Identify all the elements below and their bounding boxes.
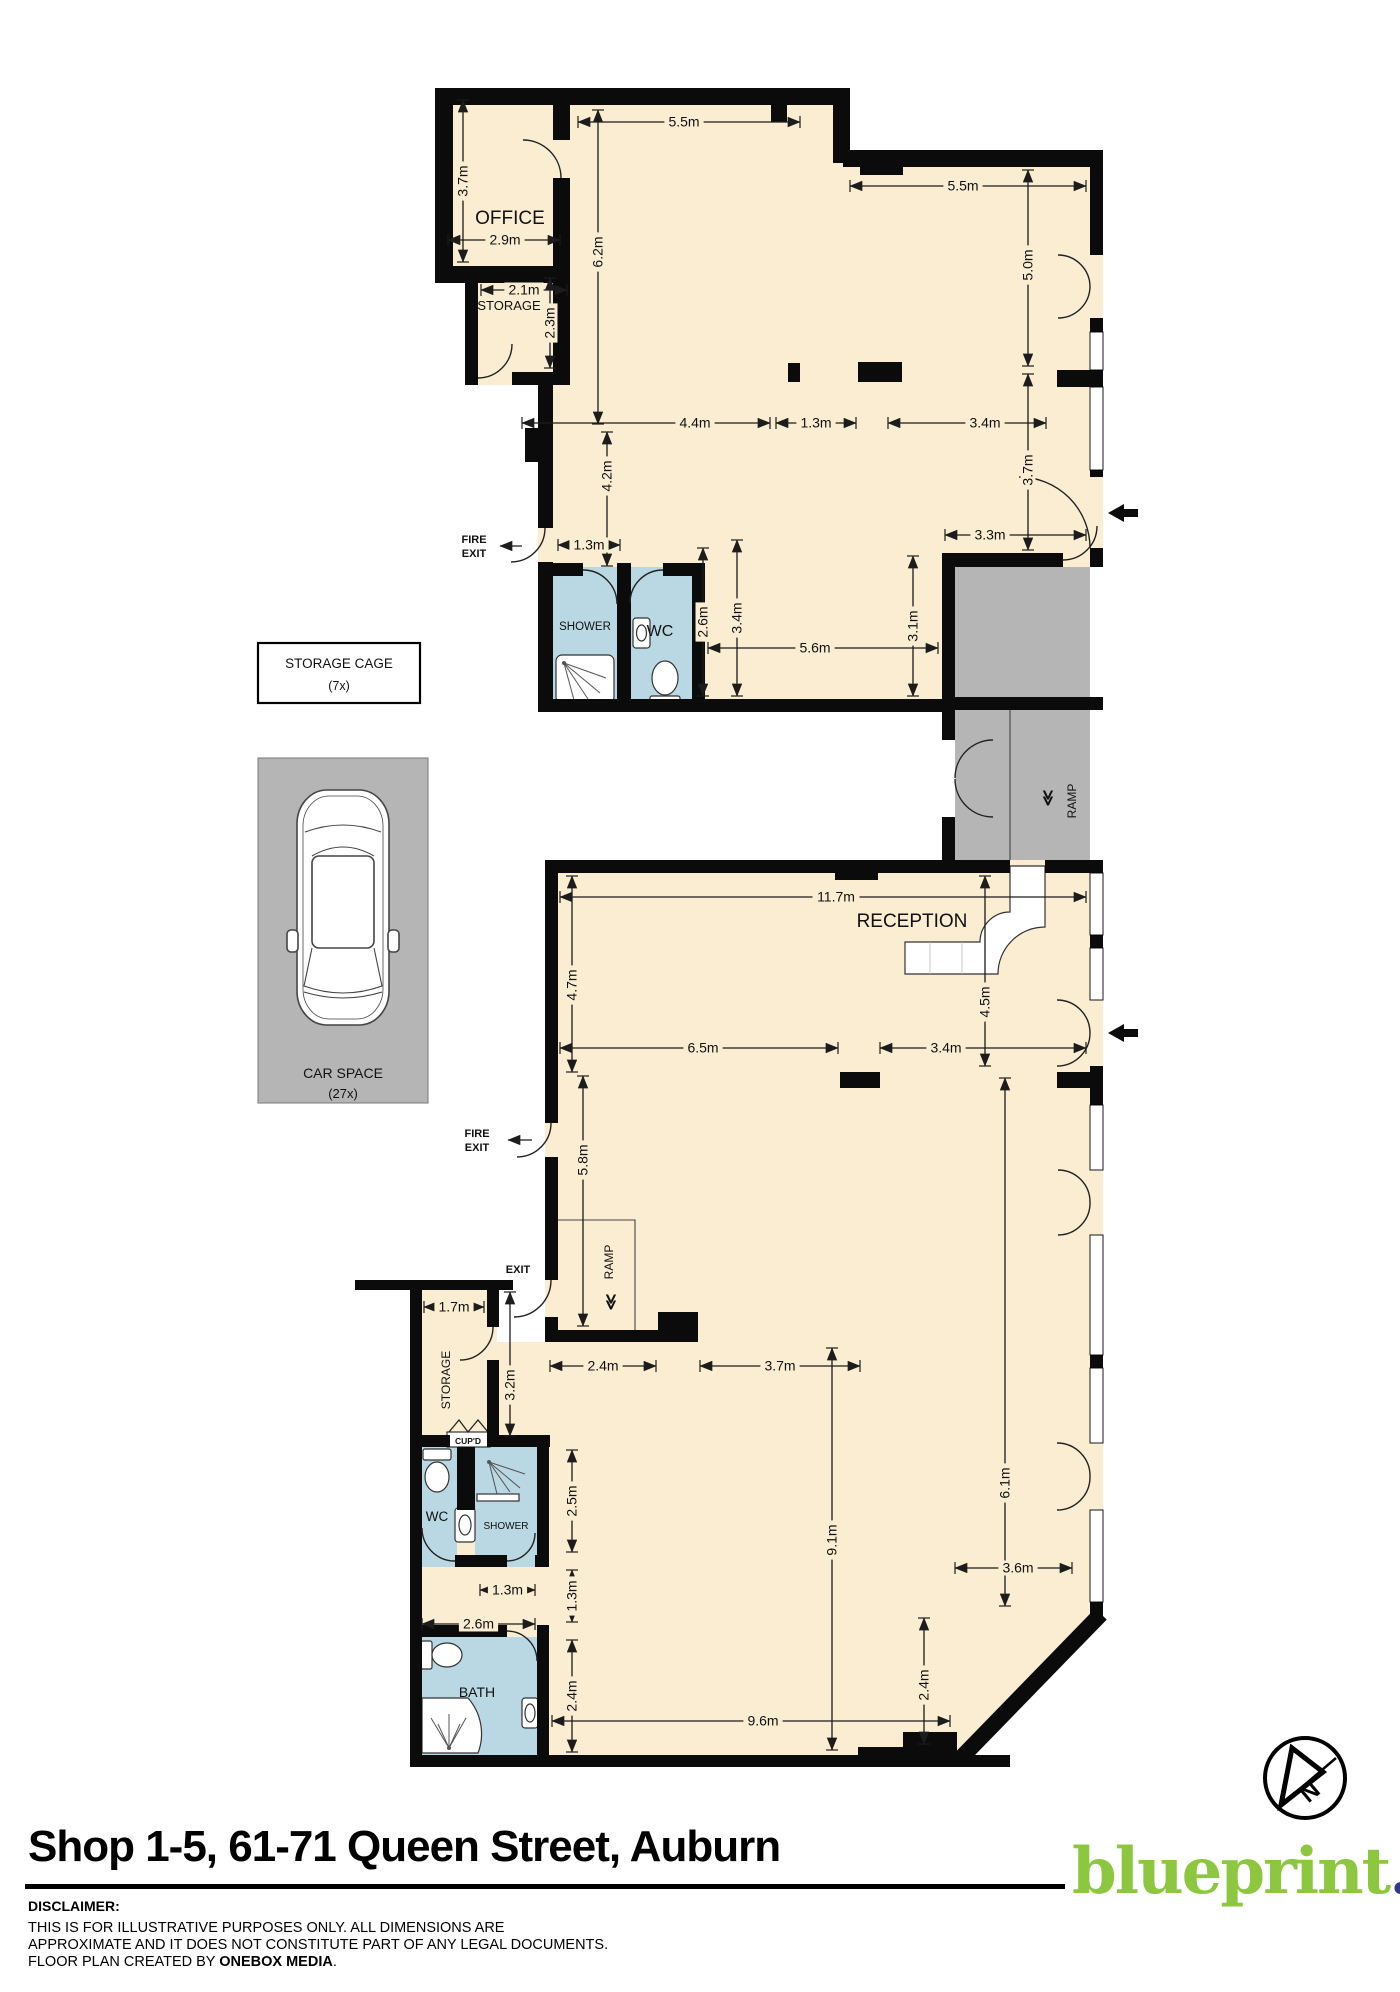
wc-bottom-label: WC bbox=[426, 1509, 449, 1524]
logo-text: blueprint bbox=[1072, 1834, 1389, 1909]
dimension: 1.3m bbox=[480, 1582, 535, 1598]
title-rule bbox=[25, 1884, 1065, 1889]
svg-text:1.3m: 1.3m bbox=[800, 415, 831, 431]
svg-text:2.4m: 2.4m bbox=[916, 1669, 932, 1700]
storage-cage-line1: STORAGE CAGE bbox=[285, 656, 393, 671]
office-label: OFFICE bbox=[475, 208, 545, 229]
svg-text:3.7m: 3.7m bbox=[455, 165, 471, 196]
disclaimer-line1: THIS IS FOR ILLUSTRATIVE PURPOSES ONLY. … bbox=[28, 1920, 608, 1937]
entry-arrows bbox=[1108, 504, 1138, 1042]
blueprint-logo: blueprint. bbox=[1072, 1834, 1400, 1909]
svg-text:2.4m: 2.4m bbox=[564, 1680, 580, 1711]
fire-exit-top-line1: FIRE bbox=[461, 534, 486, 546]
svg-text:3.7m: 3.7m bbox=[1020, 454, 1036, 485]
storage-cage-box bbox=[258, 643, 420, 703]
north-compass-icon: N bbox=[1265, 1738, 1345, 1818]
svg-text:4.4m: 4.4m bbox=[679, 415, 710, 431]
svg-text:1.3m: 1.3m bbox=[492, 1582, 523, 1598]
svg-text:4.2m: 4.2m bbox=[599, 460, 615, 491]
svg-text:2.3m: 2.3m bbox=[542, 307, 558, 338]
svg-text:9.6m: 9.6m bbox=[747, 1713, 778, 1729]
ramp-gray-chevrons-icon: ≪ bbox=[1040, 790, 1057, 807]
shower-bottom-label: SHOWER bbox=[484, 1521, 529, 1532]
ramp-gray-label: RAMP bbox=[1065, 784, 1079, 819]
svg-text:3.4m: 3.4m bbox=[930, 1040, 961, 1056]
svg-text:5.5m: 5.5m bbox=[947, 178, 978, 194]
disclaimer-creator: ONEBOX MEDIA bbox=[219, 1954, 333, 1970]
svg-text:3.2m: 3.2m bbox=[502, 1369, 518, 1400]
svg-text:5.8m: 5.8m bbox=[575, 1144, 591, 1175]
shower-top-label: SHOWER bbox=[559, 621, 611, 633]
shower-bottom-floor bbox=[475, 1447, 537, 1567]
floorplan-svg: 3.7m5.5m5.5m2.9m2.1m2.3m6.2m5.0m4.4m1.3m… bbox=[0, 0, 1400, 1992]
svg-text:2.6m: 2.6m bbox=[695, 606, 711, 637]
svg-text:4.7m: 4.7m bbox=[564, 969, 580, 1000]
ramp-inner-label: RAMP bbox=[602, 1245, 616, 1280]
fire-exit-mid-line1: FIRE bbox=[464, 1128, 489, 1140]
svg-text:6.1m: 6.1m bbox=[997, 1467, 1013, 1498]
svg-text:2.6m: 2.6m bbox=[463, 1616, 494, 1632]
north-letter: N bbox=[1295, 1776, 1326, 1808]
svg-text:3.6m: 3.6m bbox=[1002, 1560, 1033, 1576]
disclaimer-block: DISCLAIMER: THIS IS FOR ILLUSTRATIVE PUR… bbox=[28, 1898, 608, 1971]
svg-text:1.3m: 1.3m bbox=[564, 1580, 580, 1611]
exit-label: EXIT bbox=[506, 1264, 531, 1276]
svg-text:3.4m: 3.4m bbox=[729, 602, 745, 633]
svg-text:11.7m: 11.7m bbox=[817, 889, 855, 905]
svg-text:2.9m: 2.9m bbox=[489, 232, 520, 248]
storage-top-label: STORAGE bbox=[477, 298, 541, 313]
svg-text:3.4m: 3.4m bbox=[969, 415, 1000, 431]
disclaimer-line2: APPROXIMATE AND IT DOES NOT CONSTITUTE P… bbox=[28, 1937, 608, 1954]
bath-label: BATH bbox=[459, 1684, 495, 1700]
storeroom-gray bbox=[955, 567, 1090, 697]
car-space-line1: CAR SPACE bbox=[303, 1065, 383, 1081]
svg-text:9.1m: 9.1m bbox=[824, 1524, 840, 1555]
svg-text:5.0m: 5.0m bbox=[1020, 249, 1036, 280]
entry-arrow-middle-icon bbox=[1108, 1024, 1138, 1042]
car-space-line2: (27x) bbox=[328, 1086, 358, 1101]
storage-cage-line2: (7x) bbox=[328, 679, 350, 693]
cupd-label: CUP'D bbox=[455, 1436, 481, 1446]
page-title: Shop 1-5, 61-71 Queen Street, Auburn bbox=[28, 1822, 780, 1872]
storage-bottom-label: STORAGE bbox=[439, 1351, 453, 1409]
svg-text:1.3m: 1.3m bbox=[573, 537, 604, 553]
svg-text:2.1m: 2.1m bbox=[508, 282, 539, 298]
svg-text:5.5m: 5.5m bbox=[668, 114, 699, 130]
svg-text:1.7m: 1.7m bbox=[438, 1299, 469, 1315]
ramp-inner-chevrons-icon: ≪ bbox=[603, 1294, 620, 1311]
logo-dot: . bbox=[1389, 1834, 1400, 1909]
svg-text:3.7m: 3.7m bbox=[764, 1358, 795, 1374]
svg-text:2.5m: 2.5m bbox=[564, 1485, 580, 1516]
fire-exit-mid-line2: EXIT bbox=[465, 1142, 490, 1154]
entry-arrow-top-icon bbox=[1108, 504, 1138, 522]
disclaimer-line3: FLOOR PLAN CREATED BY ONEBOX MEDIA. bbox=[28, 1954, 608, 1971]
svg-text:6.2m: 6.2m bbox=[590, 236, 606, 267]
svg-text:5.6m: 5.6m bbox=[799, 640, 830, 656]
svg-text:6.5m: 6.5m bbox=[687, 1040, 718, 1056]
fire-exit-top-line2: EXIT bbox=[462, 548, 487, 560]
wc-top-label: WC bbox=[647, 623, 674, 640]
car-illustration bbox=[287, 790, 399, 1025]
svg-text:3.1m: 3.1m bbox=[905, 610, 921, 641]
svg-text:2.4m: 2.4m bbox=[587, 1358, 618, 1374]
dimension: 1.3m bbox=[564, 1570, 580, 1622]
svg-text:3.3m: 3.3m bbox=[974, 527, 1005, 543]
reception-label: RECEPTION bbox=[857, 911, 968, 932]
disclaimer-heading: DISCLAIMER: bbox=[28, 1898, 608, 1914]
floorplan-page: { "title": "Shop 1-5, 61-71 Queen Street… bbox=[0, 0, 1400, 1992]
main-section-floor bbox=[410, 860, 1103, 1762]
svg-text:4.5m: 4.5m bbox=[977, 986, 993, 1017]
fire-exit-arrows bbox=[500, 546, 532, 1140]
